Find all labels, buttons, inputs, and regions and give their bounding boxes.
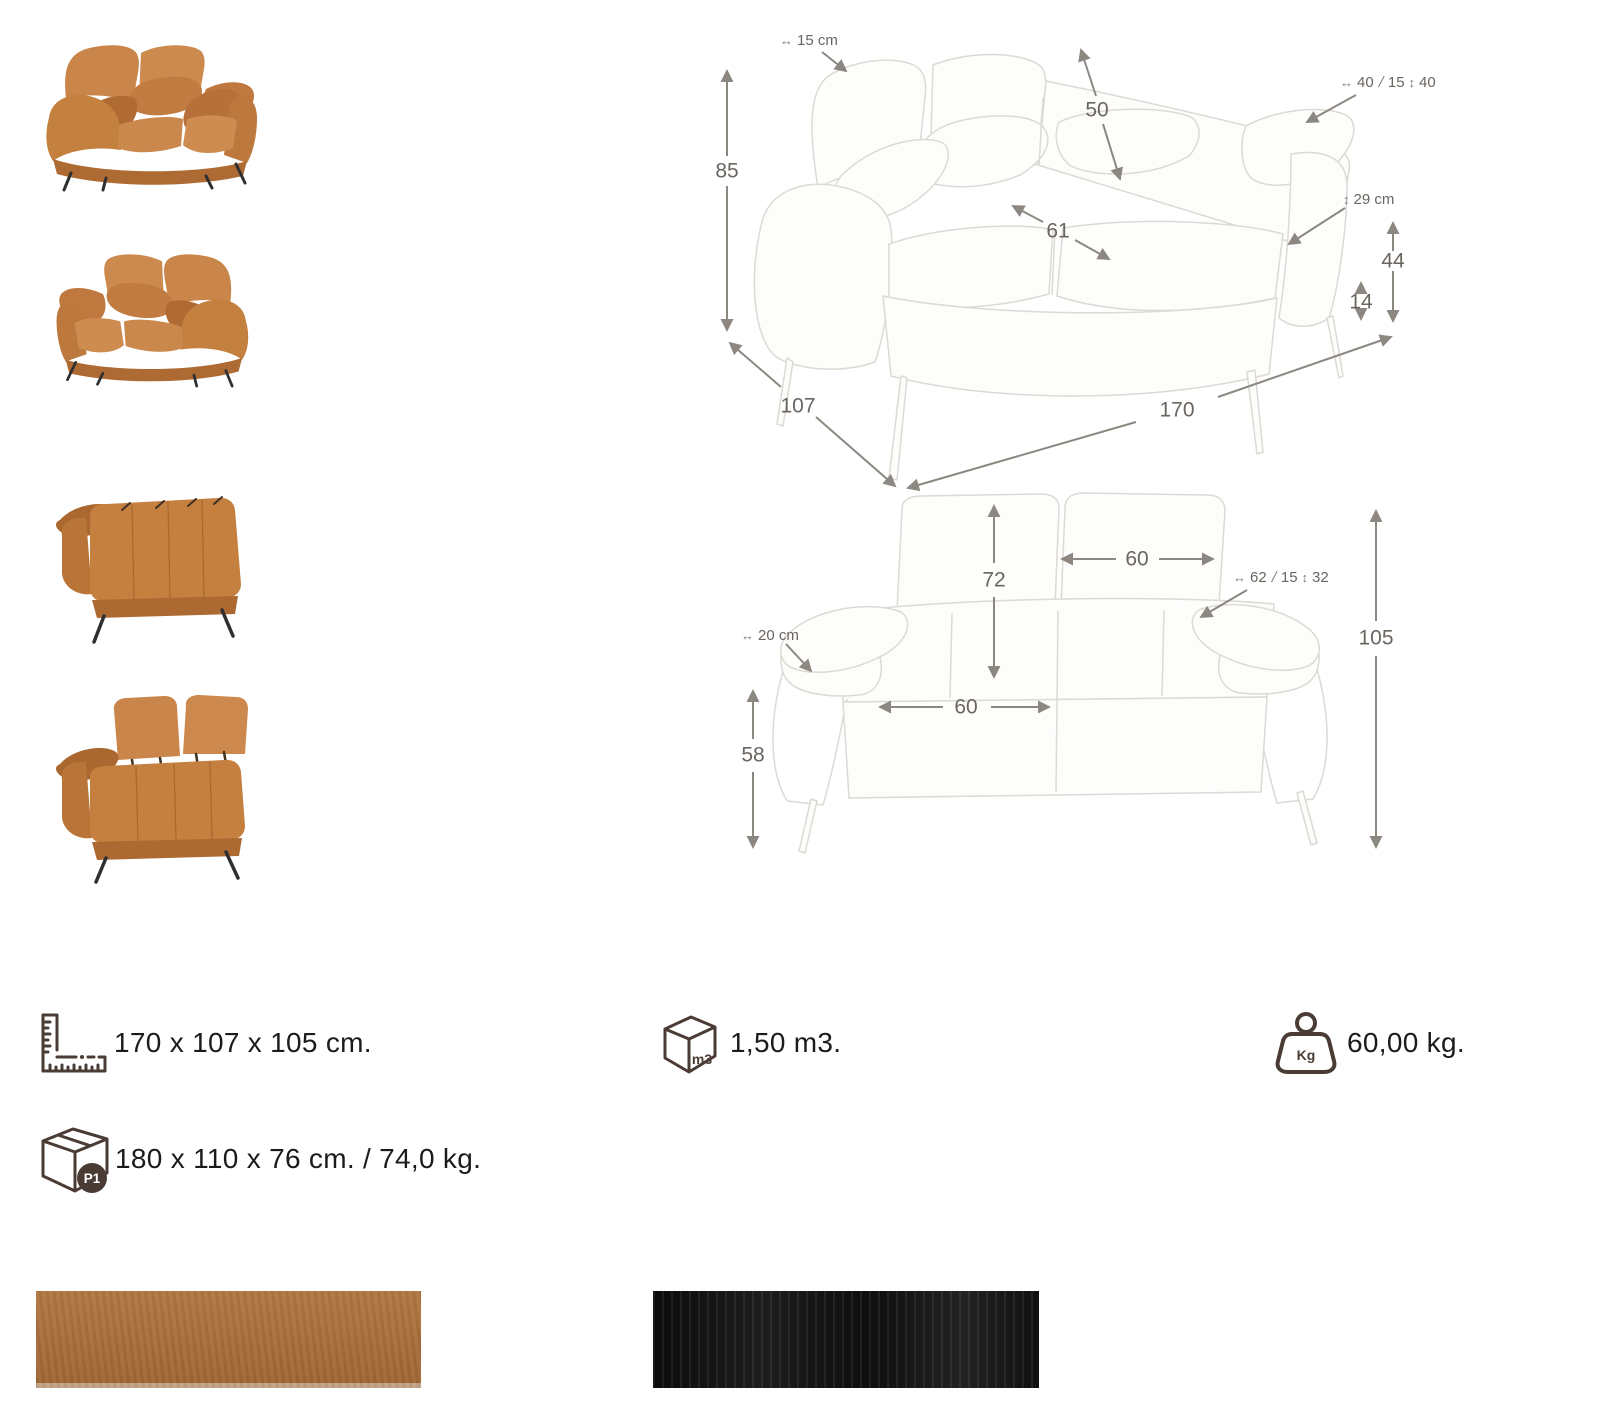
sofa-back-up-image [52,694,264,886]
weight-text: 60,00 kg. [1347,1027,1465,1059]
sofa-front-right-image [52,244,254,388]
h-arrow-icon: ↔ [1233,571,1246,584]
diagonal-icon: / [1377,75,1385,90]
dim-backrest-height-front: 50 [1085,100,1108,121]
spec-dimensions: 170 x 107 x 105 cm. [36,1008,372,1078]
ruler-icon [36,1012,108,1074]
sketch-front-outline [754,54,1354,480]
dim-seat-width: 60 [954,697,977,718]
dim-pillow-front: ↔ 40 / 15 ↕ 40 [1340,75,1436,90]
dim-backrest-width: 60 [1125,549,1148,570]
dim-arm-height-front: 44 [1381,251,1404,272]
package-icon: P1 [36,1124,114,1194]
cube-m3-icon: m3 [652,1008,727,1078]
sofa-front-image [40,34,262,192]
package-text: 180 x 110 x 76 cm. / 74,0 kg. [115,1143,481,1175]
weight-kg-icon: Kg [1272,1010,1340,1076]
sofa-thumbnail-back-headrests-down[interactable] [52,474,258,646]
weight-label: Kg [1297,1047,1316,1063]
volume-text: 1,50 m3. [730,1027,841,1059]
spec-weight: Kg 60,00 kg. [1272,1008,1465,1078]
color-swatch-cognac[interactable] [36,1291,421,1388]
dim-seat-depth: 61 [1046,221,1069,242]
dim-leg-height: 14 [1349,292,1372,313]
dimension-diagram-front: 85 ↔ 15 cm 50 ↔ 40 / 15 ↕ 40 61 ↕ 29 cm … [690,25,1410,500]
sketch-back-outline [773,493,1327,853]
dim-arm-width: ↔ 20 cm [741,628,799,643]
dim-total-height-back: 105 [1358,628,1393,649]
dim-depth: 107 [780,396,815,417]
diagonal-icon: / [1270,570,1278,585]
spec-volume: m3 1,50 m3. [652,1008,841,1078]
h-arrow-icon: ↔ [780,34,793,47]
product-spec-page: 85 ↔ 15 cm 50 ↔ 40 / 15 ↕ 40 61 ↕ 29 cm … [0,0,1600,1409]
brushed-black-texture [653,1291,1039,1388]
dim-width: 170 [1159,400,1194,421]
spec-package: P1 180 x 110 x 76 cm. / 74,0 kg. [36,1124,481,1194]
sofa-thumbnail-front[interactable] [40,34,262,192]
dim-pillow-back: ↔ 62 / 15 ↕ 32 [1233,570,1329,585]
cube-label: m3 [692,1051,712,1067]
h-arrow-icon: ↔ [1340,76,1353,89]
dim-total-height-front: 85 [715,161,738,182]
leather-grain-texture [36,1291,421,1388]
v-arrow-icon: ↕ [1409,76,1416,89]
v-arrow-icon: ↕ [1343,193,1350,206]
dim-seat-back-height: ↕ 29 cm [1343,192,1394,207]
sofa-sketch-back [690,480,1410,880]
dim-backrest-height-back: 72 [982,570,1005,591]
sofa-sketch-front [690,25,1410,500]
sofa-back-down-image [52,474,258,646]
package-badge-label: P1 [84,1171,101,1186]
sofa-thumbnail-back-headrests-up[interactable] [52,694,264,886]
dimensions-text: 170 x 107 x 105 cm. [114,1027,372,1059]
dim-arm-height-back: 58 [741,745,764,766]
h-arrow-icon: ↔ [741,629,754,642]
dim-headrest-width: ↔ 15 cm [780,33,838,48]
sofa-thumbnail-front-right[interactable] [52,244,254,388]
color-swatch-black[interactable] [653,1291,1039,1388]
v-arrow-icon: ↕ [1302,571,1309,584]
dimension-diagram-back: 72 60 ↔ 62 / 15 ↕ 32 ↔ 20 cm 105 58 60 [690,480,1410,880]
